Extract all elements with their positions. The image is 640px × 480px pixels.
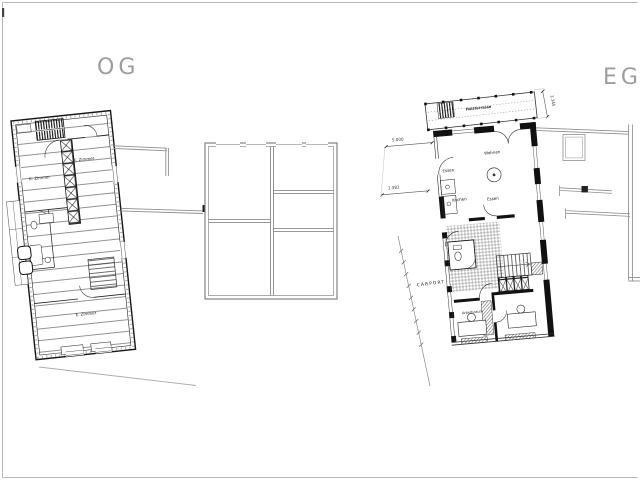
room-label: Essen bbox=[487, 195, 500, 201]
eg-storage-hatch bbox=[531, 262, 543, 275]
scan-artifact bbox=[2, 8, 4, 17]
dimension-label: 1.382 bbox=[388, 184, 401, 190]
deck-steps bbox=[437, 102, 455, 119]
plan-title-og: OG bbox=[97, 55, 139, 80]
connector-node bbox=[582, 186, 588, 192]
sink-icon bbox=[45, 257, 51, 263]
og-section-mark bbox=[19, 261, 33, 275]
plan-title-eg: EG bbox=[603, 65, 640, 90]
og-stair-middle bbox=[88, 257, 117, 290]
desk-icon bbox=[507, 312, 536, 328]
floorplan-drawing: OG EG bbox=[0, 0, 640, 480]
dimension-label: 5.000 bbox=[392, 136, 405, 142]
toilet-icon bbox=[454, 252, 461, 261]
chair-icon bbox=[517, 305, 526, 314]
og-neighbour-building bbox=[205, 142, 337, 300]
desk-icon bbox=[458, 320, 487, 336]
eg-wc bbox=[448, 240, 476, 270]
room-label: Essen bbox=[442, 167, 455, 173]
og-section-mark bbox=[17, 246, 31, 260]
toilet-icon bbox=[31, 221, 38, 230]
